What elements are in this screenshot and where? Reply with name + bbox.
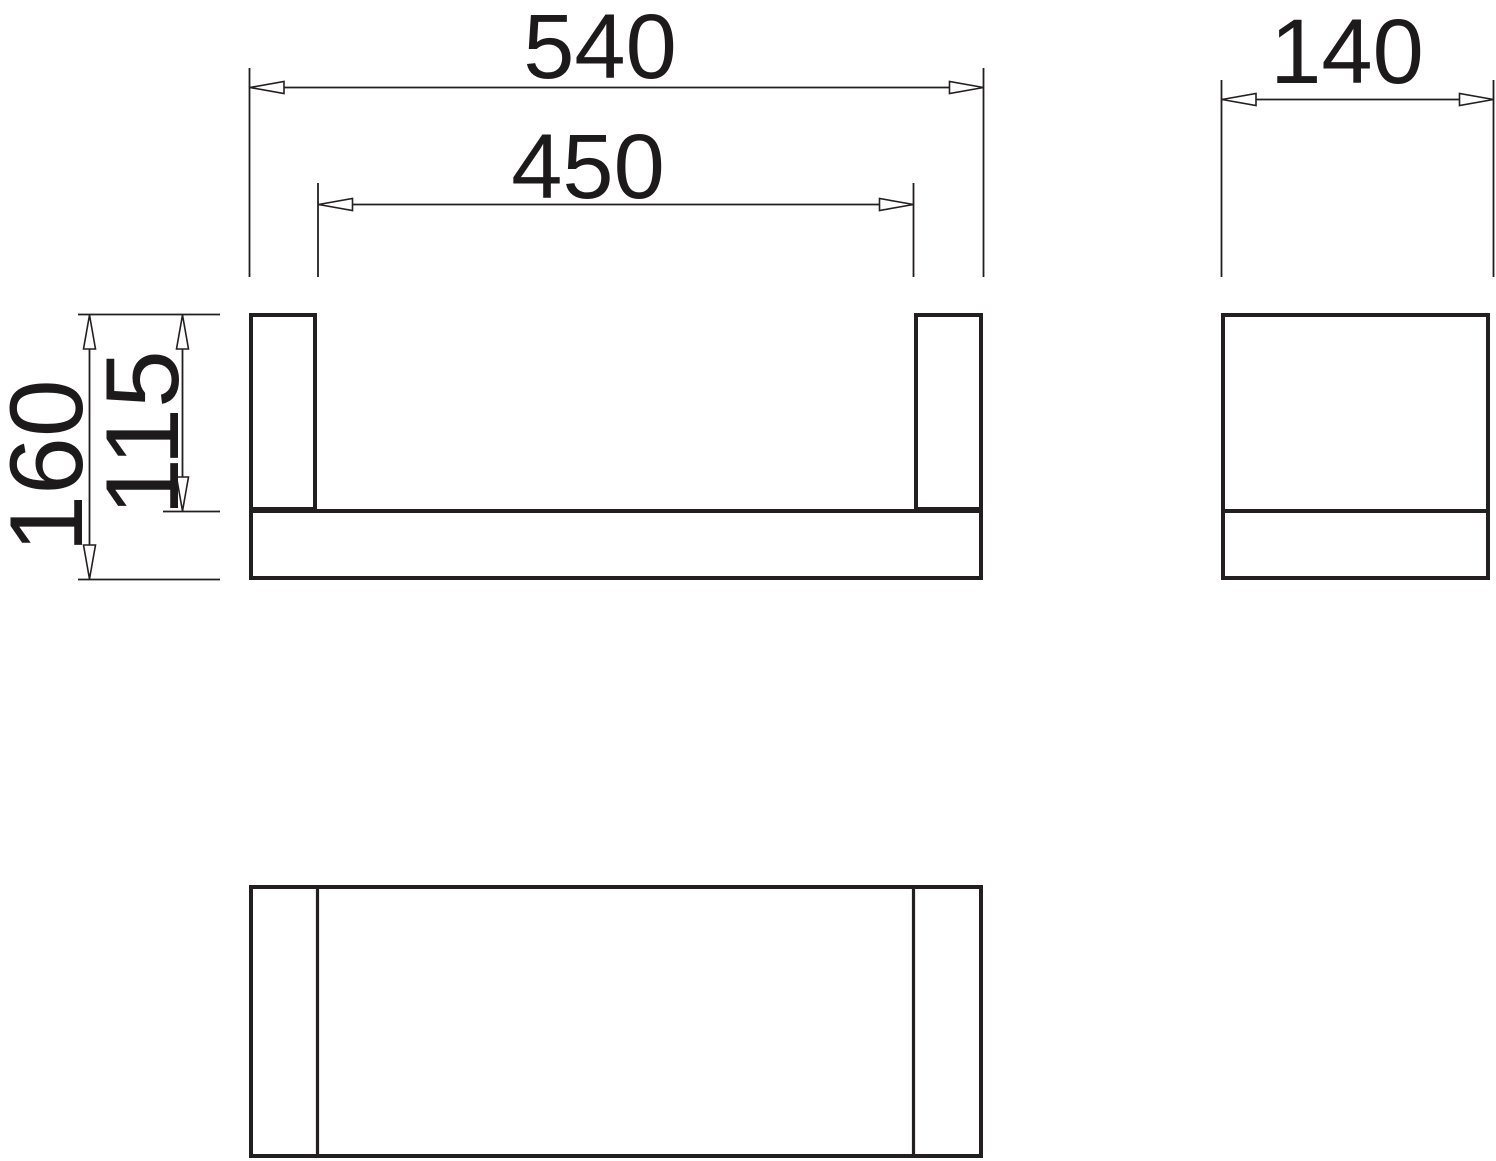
dimension-depth: 140 (1222, 1, 1494, 277)
arrowhead-right-icon (1460, 94, 1494, 106)
front-view (251, 315, 981, 578)
arrowhead-right-icon (950, 82, 984, 94)
side-view (1221, 315, 1490, 578)
arrowhead-left-icon (250, 82, 284, 94)
front-view-crossbar (251, 511, 981, 578)
technical-drawing-canvas: 540 450 140 160 (0, 0, 1496, 1161)
dimension-inner-height: 115 (85, 315, 220, 516)
dimension-label-450: 450 (511, 116, 665, 218)
plan-view (251, 886, 981, 1157)
front-view-right-post (916, 315, 981, 509)
dimension-inner-width: 450 (318, 116, 914, 277)
dimension-label-540: 540 (523, 0, 677, 98)
front-view-left-post (251, 315, 315, 509)
dimension-label-140: 140 (1270, 1, 1424, 103)
plan-view-body (251, 887, 981, 1156)
arrowhead-up-icon (84, 315, 96, 349)
arrowhead-up-icon (177, 315, 189, 349)
dimension-label-115: 115 (85, 350, 201, 516)
arrowhead-left-icon (1222, 94, 1256, 106)
arrowhead-right-icon (880, 199, 914, 211)
side-view-body (1223, 315, 1488, 578)
drawing-svg: 540 450 140 160 (0, 0, 1496, 1161)
arrowhead-left-icon (319, 199, 353, 211)
